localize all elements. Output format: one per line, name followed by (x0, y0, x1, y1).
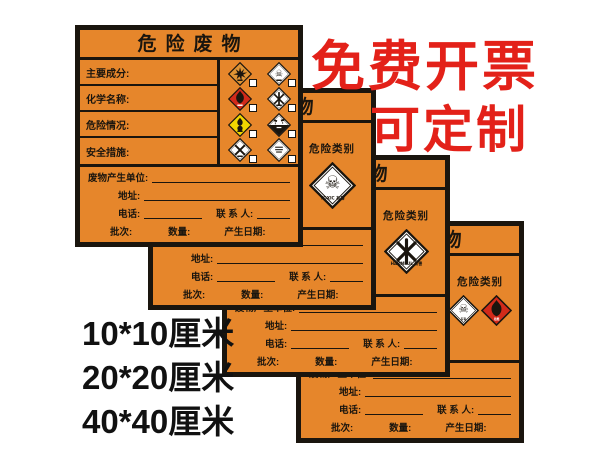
icon-cell (220, 138, 259, 164)
svg-text:易燃: 易燃 (493, 317, 500, 321)
contact-line (257, 208, 290, 219)
size-option-20x20: 20*20厘米 (82, 356, 234, 400)
date-label: 产生日期: (297, 290, 338, 301)
field-chemical-name: 化学名称: (80, 86, 217, 112)
address-line (365, 386, 511, 397)
harmful-icon (267, 87, 291, 111)
svg-text:☠: ☠ (324, 172, 340, 193)
harmful-icon: HARMFUL 有害 (384, 229, 429, 274)
svg-text:☠: ☠ (458, 301, 469, 315)
hazard-category-icons: HARMFUL 有害 (367, 229, 445, 274)
batch-label: 批次: (110, 227, 132, 238)
hazard-category-box: 危险类别 HARMFUL 有害 (367, 190, 445, 294)
phone-label: 电话: (339, 405, 361, 416)
label-title: 危险废物 (80, 30, 298, 60)
icon-cell (220, 112, 259, 138)
unit-label: 废物产生单位: (88, 173, 148, 184)
quantity-label: 数量: (168, 227, 190, 238)
corrosive-icon (267, 113, 291, 137)
quantity-label: 数量: (241, 290, 263, 301)
oxidizer-icon (228, 113, 252, 137)
contact-label: 联 系 人: (216, 209, 253, 220)
address-label: 地址: (191, 254, 213, 265)
promo-customizable-text: 可定制 (370, 90, 529, 162)
quantity-label: 数量: (389, 423, 411, 434)
batch-label: 批次: (257, 357, 279, 368)
address-line (217, 253, 363, 264)
address-label: 地址: (118, 191, 140, 202)
contact-line (404, 338, 437, 349)
contact-label: 联 系 人: (363, 339, 400, 350)
icon-cell (220, 61, 259, 87)
toxic-icon: ☠TOXIC 有毒 (309, 162, 356, 209)
size-options: 10*10厘米 20*20厘米 40*40厘米 (82, 312, 234, 444)
infectious-icon (228, 138, 252, 162)
hazard-category-icons: ☠有毒易燃 (441, 295, 519, 326)
batch-label: 批次: (183, 290, 205, 301)
phone-line (365, 404, 423, 415)
icon-checkbox (249, 155, 257, 163)
flammable-icon (228, 87, 252, 111)
hazard-icon-grid: ☠ (220, 60, 298, 164)
contact-line (330, 271, 363, 282)
unit-line (152, 172, 290, 183)
quantity-label: 数量: (315, 357, 337, 368)
label-info-section: 废物产生单位: 地址: 电话:联 系 人: 批次:数量:产生日期: (80, 167, 298, 241)
label-middle-section: 主要成分: 化学名称: 危险情况: 安全措施: ☠ (80, 60, 298, 167)
hazard-category-heading: 危险类别 (293, 141, 371, 156)
phone-label: 电话: (265, 339, 287, 350)
icon-checkbox (249, 79, 257, 87)
date-label: 产生日期: (445, 423, 486, 434)
icon-checkbox (288, 104, 296, 112)
icon-cell (259, 138, 298, 164)
date-label: 产生日期: (371, 357, 412, 368)
size-option-40x40: 40*40厘米 (82, 400, 234, 444)
icon-cell (220, 87, 259, 113)
hazard-category-heading: 危险类别 (367, 208, 445, 223)
svg-text:☠: ☠ (274, 69, 282, 79)
hazard-label-front: 危险废物 主要成分: 化学名称: 危险情况: 安全措施: ☠ 废物产生单位: 地… (75, 25, 303, 247)
miscellaneous-icon (267, 138, 291, 162)
product-image: 危险废物 危险类别 ☠有毒易燃 废物产生单位: 地址: 电话:联 系 人: 批次… (0, 0, 600, 450)
phone-label: 电话: (191, 272, 213, 283)
contact-line (478, 404, 511, 415)
svg-text:TOXIC 有毒: TOXIC 有毒 (320, 195, 345, 202)
field-main-components: 主要成分: (80, 60, 217, 86)
svg-text:HARMFUL 有害: HARMFUL 有害 (390, 260, 422, 266)
contact-label: 联 系 人: (437, 405, 474, 416)
icon-checkbox (249, 130, 257, 138)
flammable-icon: 易燃 (481, 295, 512, 326)
phone-line (217, 271, 275, 282)
icon-checkbox (288, 155, 296, 163)
icon-checkbox (288, 79, 296, 87)
icon-checkbox (288, 130, 296, 138)
address-label: 地址: (265, 321, 287, 332)
size-option-10x10: 10*10厘米 (82, 312, 234, 356)
label-fields: 主要成分: 化学名称: 危险情况: 安全措施: (80, 60, 220, 164)
contact-label: 联 系 人: (289, 272, 326, 283)
hazard-category-heading: 危险类别 (441, 274, 519, 289)
phone-line (291, 338, 349, 349)
icon-cell: ☠ (259, 61, 298, 87)
field-safety-measures: 安全措施: (80, 138, 217, 164)
date-label: 产生日期: (224, 227, 265, 238)
icon-checkbox (249, 104, 257, 112)
svg-text:有毒: 有毒 (461, 317, 467, 321)
address-line (144, 190, 290, 201)
icon-cell (259, 112, 298, 138)
batch-label: 批次: (331, 423, 353, 434)
hazard-category-icons: ☠TOXIC 有毒 (293, 162, 371, 209)
toxic-icon: ☠ (267, 62, 291, 86)
field-danger-situation: 危险情况: (80, 112, 217, 138)
hazard-category-box: 危险类别 ☠有毒易燃 (441, 256, 519, 360)
toxic-icon: ☠有毒 (448, 295, 479, 326)
phone-label: 电话: (118, 209, 140, 220)
explosive-icon (228, 62, 252, 86)
icon-cell (259, 87, 298, 113)
phone-line (144, 208, 202, 219)
address-line (291, 320, 437, 331)
hazard-category-box: 危险类别 ☠TOXIC 有毒 (293, 123, 371, 227)
address-label: 地址: (339, 387, 361, 398)
